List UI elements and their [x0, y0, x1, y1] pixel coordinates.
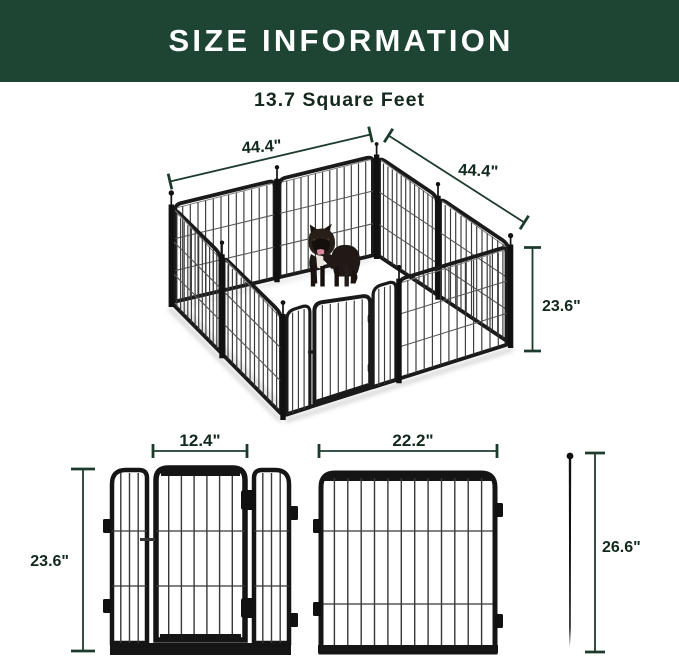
svg-text:12.4": 12.4": [179, 431, 220, 450]
svg-text:26.6": 26.6": [602, 539, 641, 556]
svg-text:23.6": 23.6": [542, 298, 581, 315]
svg-text:23.6": 23.6": [30, 553, 69, 570]
svg-text:22.2": 22.2": [392, 431, 433, 450]
svg-text:44.4": 44.4": [458, 161, 499, 181]
svg-text:44.4": 44.4": [241, 137, 282, 158]
